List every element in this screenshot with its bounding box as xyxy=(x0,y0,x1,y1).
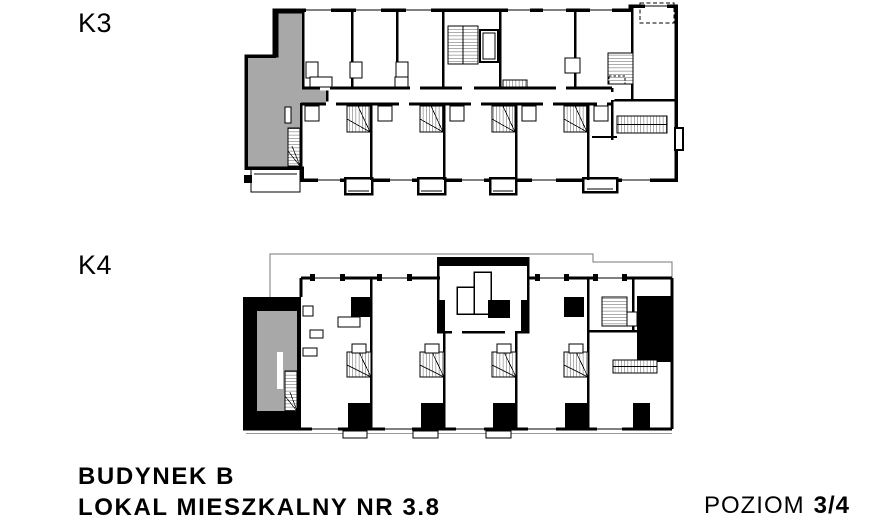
k3-floor-plan xyxy=(238,0,690,200)
k4-stairwell-core xyxy=(438,258,528,335)
k4-floor-plan xyxy=(238,248,690,444)
k3-winder-stairs xyxy=(347,106,667,133)
k3-straight-stair xyxy=(608,53,633,84)
k3-terrace xyxy=(244,169,300,192)
plan-label-k4: K4 xyxy=(78,250,112,281)
unit-title: LOKAL MIESZKALNY NR 3.8 xyxy=(78,492,441,523)
level-label: POZIOM xyxy=(704,492,805,519)
title-block: BUDYNEK B LOKAL MIESZKALNY NR 3.8 xyxy=(78,461,441,523)
k3-highlighted-unit xyxy=(246,12,327,168)
k4-upper-stair xyxy=(602,297,627,326)
floor-plan-sheet: K3 K4 xyxy=(0,0,888,532)
k4-right-core xyxy=(637,296,672,362)
building-title: BUDYNEK B xyxy=(78,461,441,492)
k4-lower-bays xyxy=(343,431,511,438)
plan-label-k3: K3 xyxy=(78,8,112,39)
k4-left-block xyxy=(243,297,301,429)
level-indicator: POZIOM3/4 xyxy=(704,492,850,520)
k3-stairwell-core xyxy=(448,26,527,87)
k3-interior-walls xyxy=(301,6,676,180)
level-value: 3/4 xyxy=(814,492,850,519)
